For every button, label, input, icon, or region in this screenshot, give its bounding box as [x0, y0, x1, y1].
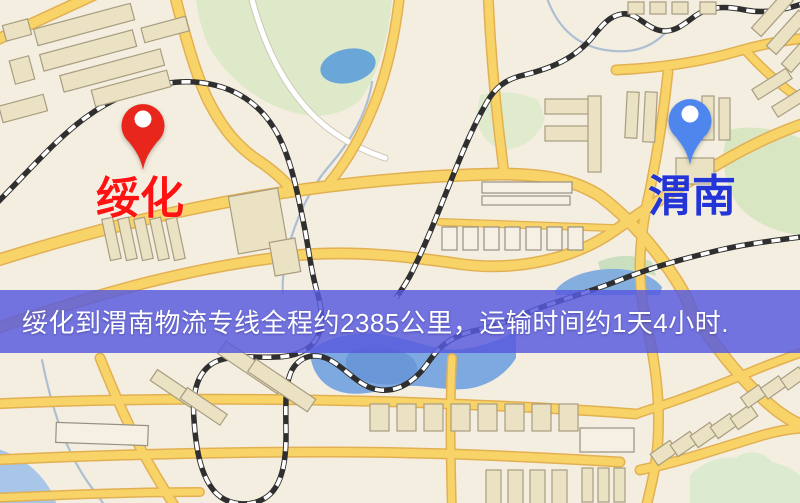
map-canvas — [0, 0, 800, 503]
destination-label: 渭南 — [648, 175, 736, 219]
origin-pin-icon — [113, 94, 173, 172]
route-info-banner: 绥化到渭南物流专线全程约2385公里，运输时间约1天4小时. — [0, 290, 800, 353]
origin-label: 绥化 — [96, 177, 184, 221]
route-info-text: 绥化到渭南物流专线全程约2385公里，运输时间约1天4小时. — [22, 303, 729, 340]
map-screenshot: 绥化 渭南 绥化到渭南物流专线全程约2385公里，运输时间约1天4小时. — [0, 0, 800, 503]
destination-pin-icon — [660, 89, 720, 167]
